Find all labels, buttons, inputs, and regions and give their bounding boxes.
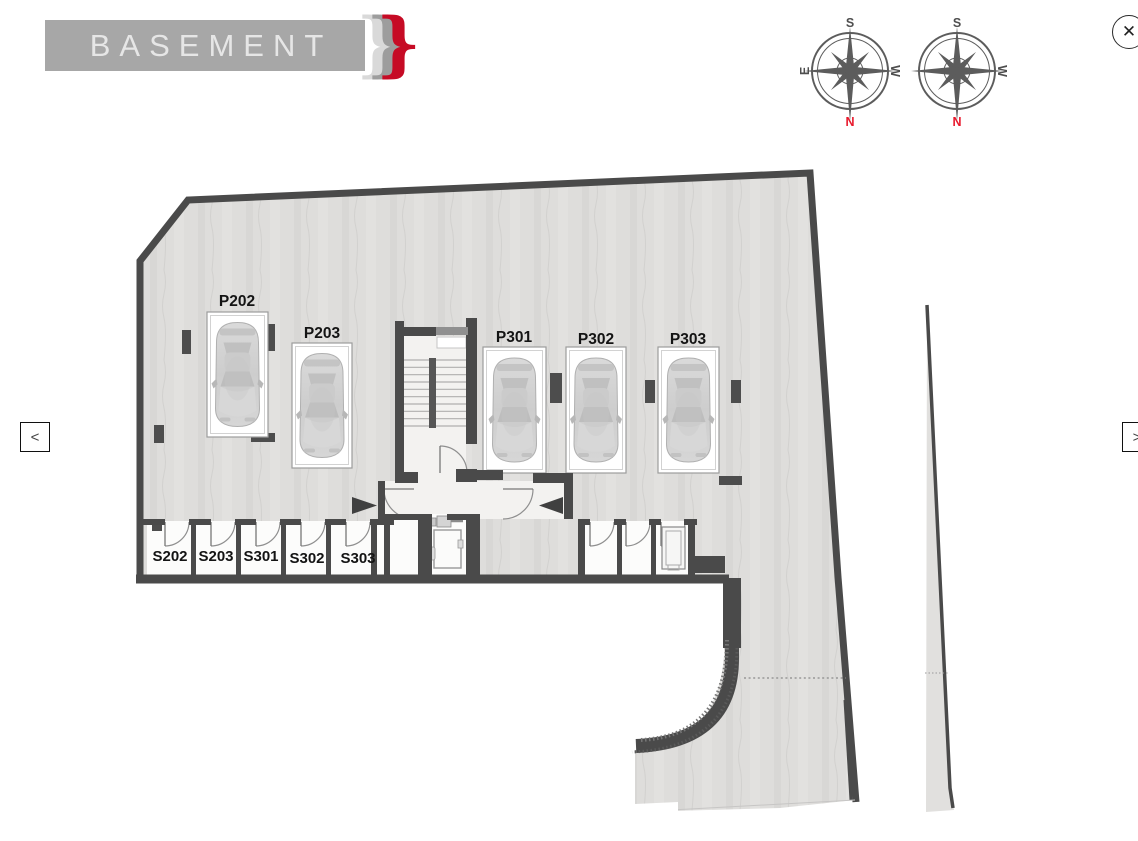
parking-spot <box>292 343 352 468</box>
car-top-view <box>296 354 348 458</box>
parking-spot <box>658 347 719 473</box>
storage-room-label: S302 <box>289 550 324 567</box>
storage-room-label: S203 <box>198 548 233 565</box>
parking-spot <box>483 347 546 473</box>
floor-plan: P202 P203 P301 P302 P303 S202 S203 S301 … <box>0 0 1138 841</box>
car-top-view <box>570 358 622 462</box>
driveway-floor <box>635 578 855 812</box>
storage-room-label: S301 <box>243 548 278 565</box>
parking-spot-label: P303 <box>670 331 707 348</box>
parking-spot-label: P202 <box>219 293 255 310</box>
storage-room-label: S303 <box>340 550 375 567</box>
storage-room-label: S202 <box>152 548 187 565</box>
car-top-view <box>212 323 264 427</box>
elevator-shaft <box>662 527 685 570</box>
parking-spot-label: P301 <box>496 329 533 346</box>
parking-spot <box>207 312 268 437</box>
parking-spot-label: P302 <box>578 331 614 348</box>
car-top-view <box>489 358 541 462</box>
parking-spot-label: P203 <box>304 325 341 342</box>
car-top-view <box>663 358 715 462</box>
storage-labels: S202 S203 S301 S302 S303 <box>152 548 375 567</box>
parking-spot <box>566 347 626 473</box>
